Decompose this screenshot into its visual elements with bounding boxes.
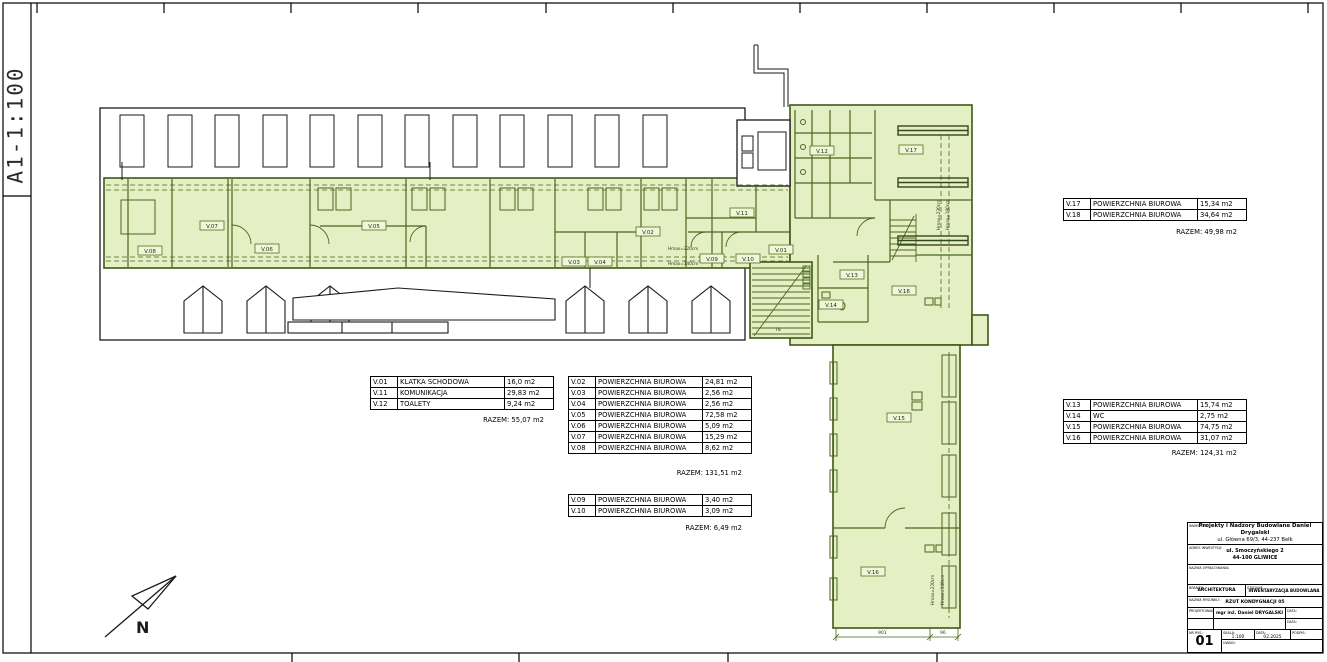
room-code: V.15	[1064, 422, 1091, 433]
table-row: V.05POWIERZCHNIA BIUROWA72,58 m2	[569, 410, 752, 421]
room-label-v09: V.09	[706, 257, 718, 263]
designer-name: mgr inż. Daniel DRYGALSKI	[1214, 608, 1285, 618]
room-name: POWIERZCHNIA BIUROWA	[596, 495, 703, 506]
investor-label: INWESTOR:	[1189, 524, 1208, 528]
room-code: V.13	[1064, 400, 1091, 411]
room-area: 15,29 m2	[703, 432, 752, 443]
annotation-h190-vert: Hmax=190cm	[945, 200, 950, 230]
room-name: POWIERZCHNIA BIUROWA	[596, 377, 703, 388]
signature-cell: PODPIS:	[1291, 630, 1322, 639]
project-name-label: NAZWA OPRACOWANIA:	[1189, 566, 1229, 570]
room-name: WC	[1091, 411, 1198, 422]
date-label-2: DATA:	[1287, 620, 1297, 624]
room-label-v17: V.17	[905, 148, 917, 154]
annotation-h140: Hmax=140cm	[668, 261, 698, 266]
designer-name-cell: mgr inż. Daniel DRYGALSKI	[1214, 608, 1286, 618]
room-name: TOALETY	[398, 399, 505, 410]
room-name: POWIERZCHNIA BIUROWA	[596, 506, 703, 517]
table-row: V.10POWIERZCHNIA BIUROWA3,09 m2	[569, 506, 752, 517]
room-code: V.02	[569, 377, 596, 388]
room-area: 2,56 m2	[703, 388, 752, 399]
table-1-total: RAZEM: 55,07 m2	[370, 416, 544, 424]
room-label-v10: V.10	[742, 257, 754, 263]
table-row: V.07POWIERZCHNIA BIUROWA15,29 m2	[569, 432, 752, 443]
fold-ticks-top	[37, 3, 1308, 13]
area-table-1: V.01KLATKA SCHODOWA16,0 m2 V.11KOMUNIKAC…	[370, 376, 554, 410]
room-code: V.10	[569, 506, 596, 517]
branch-cell: BRANŻA: ARCHITEKTURA	[1188, 585, 1246, 596]
room-code: V.14	[1064, 411, 1091, 422]
title-block-extra-row: DATA:	[1188, 619, 1322, 630]
room-label-v02: V.02	[642, 230, 654, 236]
notes-cell: UWAGI:	[1222, 640, 1322, 652]
room-label-v05: V.05	[368, 224, 380, 230]
room-code: V.01	[371, 377, 398, 388]
table-3-total: RAZEM: 6,49 m2	[568, 524, 742, 532]
designer-date-cell: DATA:	[1286, 608, 1322, 618]
investor-address: ul. Główna 69/3, 44-237 Bełk	[1217, 537, 1292, 544]
room-label-v13: V.13	[846, 273, 858, 279]
table-row: V.09POWIERZCHNIA BIUROWA3,40 m2	[569, 495, 752, 506]
table-row: V.13POWIERZCHNIA BIUROWA15,74 m2	[1064, 400, 1247, 411]
roof-platform	[288, 322, 448, 333]
table-row: V.08POWIERZCHNIA BIUROWA8,62 m2	[569, 443, 752, 454]
date-label-3: DATA:	[1256, 631, 1266, 635]
room-name: POWIERZCHNIA BIUROWA	[596, 421, 703, 432]
room-code: V.05	[569, 410, 596, 421]
title-block-drawing-row: NAZWA RYSUNKU: RZUT KONDYGNACJI 05	[1188, 597, 1322, 608]
dim-text-stair: 78	[775, 327, 781, 333]
table-row: V.12TOALETY9,24 m2	[371, 399, 554, 410]
room-name: POWIERZCHNIA BIUROWA	[1091, 400, 1198, 411]
room-code: V.18	[1064, 210, 1091, 221]
area-table-3: V.09POWIERZCHNIA BIUROWA3,40 m2 V.10POWI…	[568, 494, 752, 517]
room-code: V.09	[569, 495, 596, 506]
room-name: POWIERZCHNIA BIUROWA	[596, 399, 703, 410]
room-area: 3,40 m2	[703, 495, 752, 506]
table-row: V.17POWIERZCHNIA BIUROWA15,34 m2	[1064, 199, 1247, 210]
room-area: 74,75 m2	[1198, 422, 1247, 433]
room-name: KLATKA SCHODOWA	[398, 377, 505, 388]
drawing-sheet: 901 96 78 Hmax=220cm Hmax=140cm Hmax=230…	[0, 0, 1327, 662]
room-label-v12: V.12	[816, 149, 828, 155]
room-code: V.06	[569, 421, 596, 432]
sheet-number-cell: NR RYS.: 01	[1188, 630, 1222, 653]
room-area: 24,81 m2	[703, 377, 752, 388]
table-row: V.01KLATKA SCHODOWA16,0 m2	[371, 377, 554, 388]
room-area: 15,74 m2	[1198, 400, 1247, 411]
area-table-5: V.13POWIERZCHNIA BIUROWA15,74 m2 V.14WC2…	[1063, 399, 1247, 444]
table-2-total: RAZEM: 131,51 m2	[568, 469, 742, 477]
annotation-h220-vert-low: Hmax=220cm	[930, 575, 935, 605]
room-area: 9,24 m2	[505, 399, 554, 410]
table-row: V.06POWIERZCHNIA BIUROWA5,09 m2	[569, 421, 752, 432]
room-code: V.11	[371, 388, 398, 399]
room-name: POWIERZCHNIA BIUROWA	[596, 443, 703, 454]
table-row: V.11KOMUNIKACJA29,83 m2	[371, 388, 554, 399]
table-row: V.16POWIERZCHNIA BIUROWA31,07 m2	[1064, 433, 1247, 444]
title-block-bottom-row: NR RYS.: 01 SKALA: 1:100 DATA: 02.2025 P…	[1188, 630, 1322, 653]
title-block-site-address: ADRES INWESTYCJI: ul. Smoczyńskiego 2 44…	[1188, 545, 1322, 565]
room-name: POWIERZCHNIA BIUROWA	[596, 410, 703, 421]
room-area: 15,34 m2	[1198, 199, 1247, 210]
room-name: POWIERZCHNIA BIUROWA	[596, 432, 703, 443]
room-name: POWIERZCHNIA BIUROWA	[1091, 422, 1198, 433]
title-block: INWESTOR: Projekty i Nadzory Budowlane D…	[1187, 522, 1323, 653]
format-strip: A1-1:100	[1, 42, 31, 207]
chimney-outline	[754, 45, 788, 107]
room-name: POWIERZCHNIA BIUROWA	[1091, 210, 1198, 221]
dim-text-side: 96	[940, 630, 946, 636]
title-block-designer-row: PROJEKTOWAŁ: mgr inż. Daniel DRYGALSKI D…	[1188, 608, 1322, 619]
stage-cell: STADIUM: INWENTARYZACJA BUDOWLANA	[1246, 585, 1322, 596]
annotation-h220: Hmax=220cm	[668, 246, 698, 251]
annotation-h230-vert: Hmax=230cm	[936, 200, 941, 230]
room-label-v01: V.01	[775, 248, 787, 254]
room-area: 31,07 m2	[1198, 433, 1247, 444]
room-code: V.12	[371, 399, 398, 410]
annotation-h140-vert-low: Hmax=140cm	[940, 575, 945, 605]
site-address-line2: 44-100 GLIWICE	[1233, 555, 1278, 562]
date-label-1: DATA:	[1287, 609, 1297, 613]
signature-label: PODPIS:	[1292, 631, 1306, 635]
table-row: V.15POWIERZCHNIA BIUROWA74,75 m2	[1064, 422, 1247, 433]
room-label-v14: V.14	[825, 303, 837, 309]
floor-plan-canvas: 901 96 78 Hmax=220cm Hmax=140cm Hmax=230…	[0, 0, 1327, 662]
title-block-project-name: NAZWA OPRACOWANIA:	[1188, 565, 1322, 585]
room-label-v07: V.07	[206, 224, 218, 230]
table-row: V.04POWIERZCHNIA BIUROWA2,56 m2	[569, 399, 752, 410]
room-code: V.17	[1064, 199, 1091, 210]
room-code: V.08	[569, 443, 596, 454]
table-row: V.14WC2,75 m2	[1064, 411, 1247, 422]
north-label: N	[136, 618, 149, 637]
title-block-branch-row: BRANŻA: ARCHITEKTURA STADIUM: INWENTARYZ…	[1188, 585, 1322, 597]
north-arrow: N	[105, 576, 176, 637]
room-name: POWIERZCHNIA BIUROWA	[1091, 433, 1198, 444]
room-area: 2,56 m2	[703, 399, 752, 410]
room-name: POWIERZCHNIA BIUROWA	[1091, 199, 1198, 210]
date-cell: DATA: 02.2025	[1255, 630, 1291, 639]
room-area: 5,09 m2	[703, 421, 752, 432]
format-scale-label: A1-1:100	[4, 66, 28, 183]
table-5-total: RAZEM: 124,31 m2	[1063, 449, 1237, 457]
table-row: V.18POWIERZCHNIA BIUROWA34,64 m2	[1064, 210, 1247, 221]
room-code: V.04	[569, 399, 596, 410]
room-area: 34,64 m2	[1198, 210, 1247, 221]
stage-label: STADIUM:	[1247, 586, 1263, 590]
table-row: V.03POWIERZCHNIA BIUROWA2,56 m2	[569, 388, 752, 399]
room-area: 8,62 m2	[703, 443, 752, 454]
extra-date-cell: DATA:	[1286, 619, 1322, 629]
room-label-v04: V.04	[594, 260, 606, 266]
room-area: 29,83 m2	[505, 388, 554, 399]
room-label-v15: V.15	[893, 416, 905, 422]
sheet-number-label: NR RYS.:	[1189, 631, 1204, 635]
scale-cell: SKALA: 1:100	[1222, 630, 1255, 639]
room-name: POWIERZCHNIA BIUROWA	[596, 388, 703, 399]
area-table-4: V.17POWIERZCHNIA BIUROWA15,34 m2 V.18POW…	[1063, 198, 1247, 221]
room-label-v03: V.03	[568, 260, 580, 266]
notes-label: UWAGI:	[1223, 641, 1236, 645]
designer-label: PROJEKTOWAŁ:	[1189, 609, 1214, 613]
room-code: V.03	[569, 388, 596, 399]
title-block-investor: INWESTOR: Projekty i Nadzory Budowlane D…	[1188, 523, 1322, 545]
table-4-total: RAZEM: 49,98 m2	[1063, 228, 1237, 236]
room-label-v08: V.08	[144, 249, 156, 255]
room-code: V.16	[1064, 433, 1091, 444]
site-address-label: ADRES INWESTYCJI:	[1189, 546, 1222, 550]
room-name: KOMUNIKACJA	[398, 388, 505, 399]
room-label-v16: V.16	[867, 570, 879, 576]
room-area: 2,75 m2	[1198, 411, 1247, 422]
table-row: V.02POWIERZCHNIA BIUROWA24,81 m2	[569, 377, 752, 388]
area-table-2: V.02POWIERZCHNIA BIUROWA24,81 m2 V.03POW…	[568, 376, 752, 454]
room-area: 3,09 m2	[703, 506, 752, 517]
room-area: 72,58 m2	[703, 410, 752, 421]
designer-label-cell: PROJEKTOWAŁ:	[1188, 608, 1214, 618]
branch-label: BRANŻA:	[1189, 586, 1204, 590]
room-label-v18: V.18	[898, 289, 910, 295]
room-code: V.07	[569, 432, 596, 443]
dim-text-main: 901	[878, 630, 887, 636]
room-area: 16,0 m2	[505, 377, 554, 388]
drawing-name-label: NAZWA RYSUNKU:	[1189, 598, 1220, 602]
scale-label: SKALA:	[1223, 631, 1235, 635]
fold-ticks-bottom	[292, 653, 937, 662]
room-label-v11: V.11	[736, 211, 748, 217]
room-label-v06: V.06	[261, 247, 273, 253]
